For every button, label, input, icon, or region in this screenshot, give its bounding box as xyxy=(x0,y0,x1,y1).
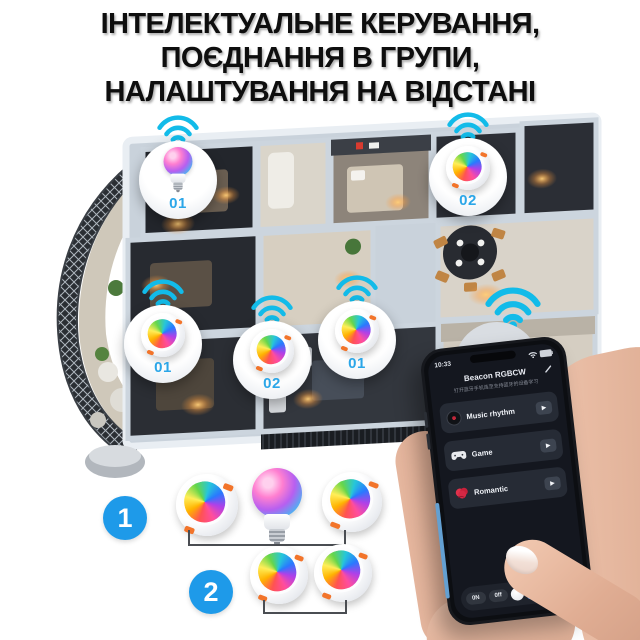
marketing-banner: ІНТЕЛЕКТУАЛЬНЕ КЕРУВАННЯ, ПОЄДНАННЯ В ГР… xyxy=(0,0,640,640)
smart-light-badge-6 xyxy=(482,284,544,323)
group-number: 1 xyxy=(117,503,132,534)
group-bracket-2 xyxy=(263,600,347,614)
gamepad-icon xyxy=(450,449,467,462)
wifi-status-icon xyxy=(528,351,539,359)
play-button[interactable]: ▶ xyxy=(535,400,552,415)
smart-light-badge-3: 01 xyxy=(124,276,202,383)
scene-card-music[interactable]: Music rhythm ▶ xyxy=(439,391,560,434)
planter xyxy=(85,445,145,478)
headline-line-1: ІНТЕЛЕКТУАЛЬНЕ КЕРУВАННЯ, xyxy=(0,8,640,42)
play-button[interactable]: ▶ xyxy=(540,438,557,453)
scene-card-game[interactable]: Game ▶ xyxy=(443,429,564,472)
downlight-image xyxy=(330,304,383,357)
edit-icon[interactable] xyxy=(544,364,553,373)
device-circle: 02 xyxy=(429,138,507,216)
device-circle: 01 xyxy=(318,301,396,379)
device-label: 02 xyxy=(233,375,311,392)
volume-button[interactable] xyxy=(424,412,429,428)
device-label: 02 xyxy=(429,192,507,209)
device-circle: 01 xyxy=(124,305,202,383)
downlight-image xyxy=(441,141,494,194)
status-time: 10:33 xyxy=(434,361,451,370)
downlight-image xyxy=(136,308,189,361)
vinyl-disc-icon xyxy=(446,409,463,426)
smart-light-badge-5: 01 xyxy=(318,272,396,379)
device-label: 01 xyxy=(318,355,396,372)
headline-line-3: НАЛАШТУВАННЯ НА ВІДСТАНІ xyxy=(0,76,640,110)
downlight-product xyxy=(308,538,378,608)
smart-light-badge-1: 01 xyxy=(139,112,217,219)
device-label: 01 xyxy=(124,359,202,376)
smart-light-badge-4: 02 xyxy=(233,292,311,399)
scene-card-label: Music rhythm xyxy=(466,406,515,420)
group-number: 2 xyxy=(203,577,218,608)
page-title: ІНТЕЛЕКТУАЛЬНЕ КЕРУВАННЯ, ПОЄДНАННЯ В ГР… xyxy=(0,8,640,110)
group-number-badge-1: 1 xyxy=(103,496,147,540)
group-number-badge-2: 2 xyxy=(189,570,233,614)
device-circle: 02 xyxy=(233,321,311,399)
group-bracket-1 xyxy=(188,530,346,546)
volume-button[interactable] xyxy=(426,434,431,450)
rose-icon xyxy=(454,485,469,500)
headline-line-2: ПОЄДНАННЯ В ГРУПИ, xyxy=(0,42,640,76)
device-circle: 01 xyxy=(139,141,217,219)
rgb-bulb-image xyxy=(162,147,193,197)
downlight-image xyxy=(245,324,298,377)
scene-card-label: Romantic xyxy=(474,483,509,496)
device-label: 01 xyxy=(139,195,217,212)
play-button[interactable]: ▶ xyxy=(544,475,561,490)
off-button[interactable]: 0ff xyxy=(488,589,509,603)
battery-icon xyxy=(539,349,552,357)
smart-light-badge-2: 02 xyxy=(429,109,507,216)
scene-card-label: Game xyxy=(471,447,493,458)
on-button[interactable]: 0N xyxy=(465,591,486,605)
